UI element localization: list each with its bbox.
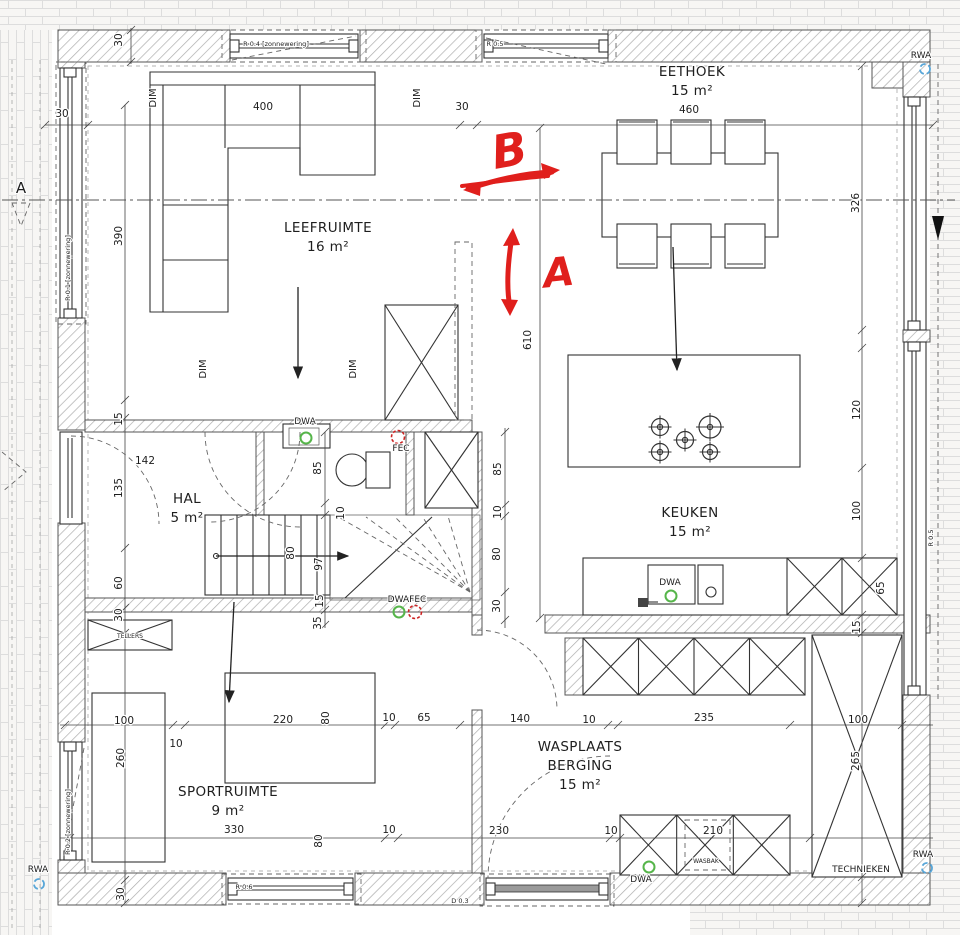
red-letter-a: A <box>538 249 577 298</box>
sport-table <box>225 673 375 783</box>
dining-chair <box>725 120 765 164</box>
dim-label: 100 <box>114 715 134 727</box>
dim-label: 65 <box>417 712 430 724</box>
staircase <box>205 515 480 600</box>
dim-label: 30 <box>113 608 125 621</box>
annotation-arrow-b-head-right <box>541 163 560 179</box>
room-label: 15 m² <box>559 777 601 793</box>
label-r-0-1-zonnewering-: R 0.1 [zonnewering] <box>64 235 72 301</box>
label-dwa: DWA <box>294 417 316 427</box>
label-dim: DIM <box>148 88 159 107</box>
dim-label: 120 <box>851 400 863 420</box>
label-r-0-5: R 0.5 <box>927 530 935 547</box>
annotation-arrow-a <box>508 236 512 308</box>
label-tellers: TELLERS <box>116 633 143 640</box>
room-label: 15 m² <box>671 83 713 99</box>
label-a: A <box>16 179 27 197</box>
dim-label: 15 <box>314 594 326 607</box>
dim-label: 326 <box>850 193 862 213</box>
room-label: LEEFRUIMTE <box>284 220 372 236</box>
label-dwa: DWA <box>630 875 652 885</box>
dim-label: 30 <box>491 599 503 612</box>
room-label: 15 m² <box>669 524 711 540</box>
dim-label: 142 <box>135 455 155 467</box>
dim-label: 97 <box>313 557 325 570</box>
dining-chair <box>671 120 711 164</box>
dim-label: 30 <box>113 33 125 46</box>
red-letter-b: B <box>487 121 531 180</box>
label-dwa: DWA <box>659 578 681 588</box>
label-dim: DIM <box>412 88 423 107</box>
dim-label: 610 <box>522 330 534 350</box>
dim-label: 10 <box>382 824 395 836</box>
laundry-cabinet-row <box>583 638 805 695</box>
room-label: KEUKEN <box>661 505 718 521</box>
dim-label: 80 <box>313 834 325 847</box>
shaft-box-upper <box>385 305 458 420</box>
dim-label: 30 <box>55 108 68 120</box>
dim-label: 80 <box>320 711 332 724</box>
dim-label: 460 <box>679 104 699 116</box>
dim-label: 85 <box>492 462 504 475</box>
annotation-arrow-a-head-bottom <box>501 299 518 316</box>
label-dim: DIM <box>198 359 209 378</box>
dim-label: 390 <box>113 226 125 246</box>
dining-chair <box>617 224 657 268</box>
label-dim: DIM <box>348 359 359 378</box>
annotation-arrow-a-head-top <box>503 228 520 246</box>
dim-label: 100 <box>848 714 868 726</box>
dim-label: 10 <box>492 505 504 518</box>
label-r-0-2-zonnewering-: R 0.2 [zonnewering] <box>64 789 72 855</box>
room-label: HAL <box>173 491 201 507</box>
window-right-dining <box>904 97 926 330</box>
label-rwa: RWA <box>913 850 934 860</box>
label-r-0-6: R 0.6 <box>236 883 253 891</box>
floor-plan-canvas: LEEFRUIMTE16 m²EETHOEK15 m²KEUKEN15 m²HA… <box>0 0 960 935</box>
room-label: BERGING <box>548 758 613 774</box>
floor-plan-drawing: LEEFRUIMTE16 m²EETHOEK15 m²KEUKEN15 m²HA… <box>0 0 960 935</box>
dim-label: 330 <box>224 824 244 836</box>
door-bottom-wasplaats <box>480 874 614 906</box>
label-r-0-4-zonnewering-: R 0.4 [zonnewering] <box>243 40 309 48</box>
dining-chair <box>617 120 657 164</box>
dim-label: 235 <box>694 712 714 724</box>
dim-label: 230 <box>489 825 509 837</box>
dim-label: 10 <box>382 712 395 724</box>
label-fec: FEC <box>392 444 409 454</box>
kitchen-island <box>568 355 800 467</box>
label-rwa: RWA <box>28 865 49 875</box>
dim-label: 35 <box>312 616 324 629</box>
dining-chair <box>725 224 765 268</box>
room-label: 9 m² <box>211 803 244 819</box>
dim-label: 15 <box>113 412 125 425</box>
dim-label: 10 <box>604 825 617 837</box>
dim-label: 135 <box>113 478 125 498</box>
label-dwafec: DWAFEC <box>388 595 427 605</box>
shaft-box-lower <box>425 432 478 508</box>
dim-label: 30 <box>455 101 468 113</box>
dining-chair <box>671 224 711 268</box>
dim-label: 220 <box>273 714 293 726</box>
dim-label: 100 <box>851 501 863 521</box>
room-label: WASPLAATS <box>538 739 623 755</box>
dim-label: 210 <box>703 825 723 837</box>
toilet <box>336 452 390 488</box>
dim-label: 10 <box>582 714 595 726</box>
dim-label: 80 <box>285 546 297 559</box>
dim-label: 15 <box>851 620 863 633</box>
label-d-0-3: D 0.3 <box>451 897 468 905</box>
dim-label: 260 <box>115 748 127 768</box>
room-label: 5 m² <box>170 510 203 526</box>
dim-label: 80 <box>491 547 503 560</box>
dim-label: 265 <box>850 751 862 771</box>
laundry-bottom-row <box>620 815 790 875</box>
dim-label: 400 <box>253 101 273 113</box>
door-entry-left <box>60 432 159 524</box>
window-right-kitchen <box>904 342 926 695</box>
room-label: SPORTRUIMTE <box>178 784 278 800</box>
label-wasbak: WASBAK <box>693 858 720 865</box>
label-rwa: RWA <box>911 51 932 61</box>
room-label: 16 m² <box>307 239 349 255</box>
label-r-0-5: R 0.5 <box>487 40 504 48</box>
dim-label: 10 <box>335 506 347 519</box>
dim-label: 140 <box>510 713 530 725</box>
dim-label: 60 <box>113 576 125 589</box>
dim-label: 30 <box>115 887 127 900</box>
label-technieken: TECHNIEKEN <box>831 865 890 875</box>
dim-label: 10 <box>169 738 182 750</box>
red-letters: BA <box>487 121 576 298</box>
dim-label: 85 <box>312 461 324 474</box>
room-label: EETHOEK <box>659 64 726 80</box>
dim-label: 65 <box>875 581 887 594</box>
